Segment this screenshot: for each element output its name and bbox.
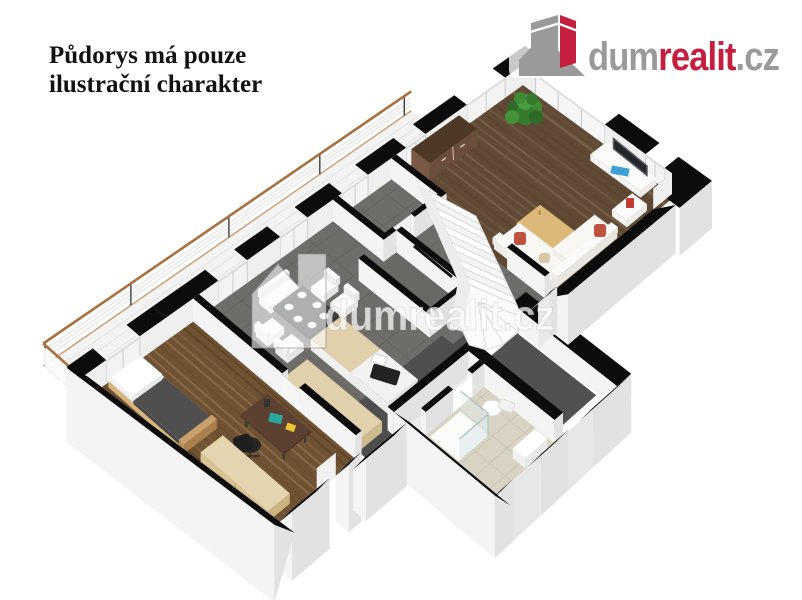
svg-text:dumrealit.cz: dumrealit.cz xyxy=(325,292,555,340)
svg-text:dumrealit.cz: dumrealit.cz xyxy=(588,35,779,79)
